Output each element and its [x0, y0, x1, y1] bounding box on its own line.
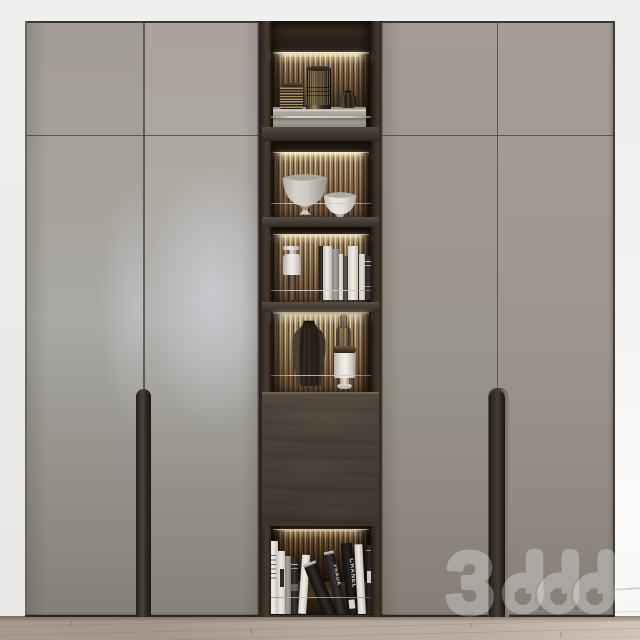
svg-text:3: 3 [446, 535, 494, 632]
